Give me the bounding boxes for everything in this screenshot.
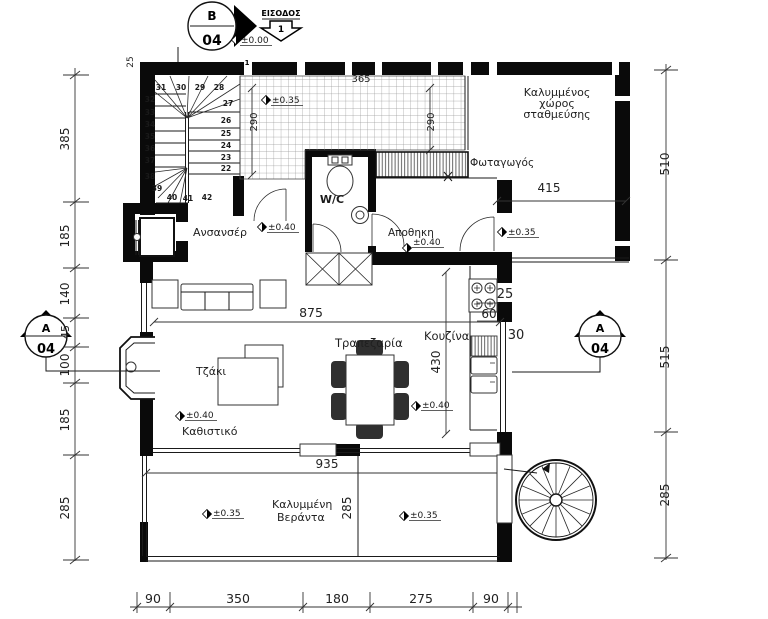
closets	[306, 253, 372, 285]
floor-plan-page: 31 30 29 28 27 26 25 24 23 22 32 33 34 3…	[0, 0, 768, 619]
step-30: 30	[176, 83, 186, 92]
toilet-tank-button	[332, 157, 338, 163]
section-b-letter: B	[207, 9, 216, 23]
dim-365: 365	[351, 74, 370, 85]
exterior-column	[497, 455, 512, 523]
dim-25-counter: 25	[497, 287, 514, 302]
svg-text:±0.00: ±0.00	[241, 36, 269, 46]
sink-basin-2	[471, 376, 497, 393]
dim-left-185a: 185	[58, 225, 72, 248]
kitchen-label: Κουζίνα	[424, 329, 470, 343]
storage-label: Αποθηκη	[388, 227, 434, 239]
dim-935: 935	[316, 457, 339, 471]
fireplace-structure	[120, 337, 155, 399]
section-a-letter: A	[42, 322, 51, 335]
section-a-number: 04	[37, 342, 55, 357]
sink-basin-1	[471, 357, 497, 374]
step-38: 38	[145, 172, 155, 181]
step-23: 23	[221, 153, 231, 162]
step-42: 42	[202, 193, 212, 202]
toilet-tank-button2	[342, 157, 348, 163]
dim-430: 430	[429, 351, 443, 374]
lightwell-label: Φωταγωγός	[470, 157, 534, 169]
step-39: 39	[152, 184, 162, 193]
step-36: 36	[145, 144, 155, 153]
side-table-left	[152, 280, 178, 308]
svg-text:±0.35: ±0.35	[272, 96, 300, 106]
dim-bottom-90b: 90	[483, 591, 499, 606]
svg-text:±0.35: ±0.35	[213, 509, 241, 519]
dim-30-wall: 30	[508, 328, 525, 343]
dining-table	[346, 355, 394, 425]
section-b-number: 04	[202, 33, 222, 49]
step-41: 41	[183, 194, 193, 203]
veranda-column-mid	[300, 444, 336, 456]
dim-left-100: 100	[58, 354, 72, 377]
dim-left-285: 285	[58, 497, 72, 520]
step-22: 22	[221, 164, 231, 173]
dim-875: 875	[299, 305, 323, 320]
coffee-table-2	[218, 358, 278, 405]
step-33: 33	[145, 108, 155, 117]
entrance-number: 1	[278, 25, 284, 35]
dim-60-counter: 60	[481, 307, 496, 321]
dim-left-45: 45	[59, 325, 72, 339]
step-25: 25	[221, 129, 231, 138]
svg-text:±0.35: ±0.35	[508, 228, 536, 238]
veranda-label-1: Καλυμμένη	[272, 498, 332, 511]
svg-text:±0.35: ±0.35	[410, 511, 438, 521]
elevator-car	[140, 218, 174, 256]
dim-bottom-350: 350	[226, 591, 250, 606]
wc-label: W/C	[320, 193, 344, 206]
dim-right-515: 515	[658, 346, 672, 369]
step-26: 26	[221, 116, 231, 125]
svg-text:±0.40: ±0.40	[186, 411, 214, 421]
svg-text:±0.40: ±0.40	[413, 238, 441, 248]
elevator	[134, 218, 175, 256]
section-a-letter: A	[596, 322, 605, 335]
dim-415: 415	[538, 181, 561, 195]
living-label: Καθιστικό	[182, 425, 238, 438]
side-table-right	[260, 280, 286, 308]
step-28: 28	[214, 83, 224, 92]
step-40: 40	[167, 193, 177, 202]
entry-step-number: 1	[245, 59, 250, 67]
dim-25-corner: 25	[126, 56, 136, 67]
dim-left-185b: 185	[58, 409, 72, 432]
fireplace-label: Τζάκι	[195, 365, 226, 378]
floor-plan-drawing: 31 30 29 28 27 26 25 24 23 22 32 33 34 3…	[0, 0, 768, 619]
dim-left-140: 140	[58, 283, 72, 306]
dim-bottom-180: 180	[325, 591, 349, 606]
svg-text:±0.40: ±0.40	[268, 223, 296, 233]
entrance-label: ΕΙΣΟΔΟΣ	[261, 9, 300, 18]
step-31: 31	[156, 83, 166, 92]
drainer	[471, 336, 497, 356]
dim-290-right: 290	[426, 112, 437, 131]
step-29: 29	[195, 83, 205, 92]
step-27: 27	[223, 99, 233, 108]
step-37: 37	[145, 156, 155, 165]
dim-left-385: 385	[58, 128, 72, 151]
wc-sink-drain	[356, 211, 364, 219]
light-well-grate	[376, 152, 468, 177]
veranda-column-right	[470, 443, 500, 456]
veranda-label-2: Βεράντα	[277, 511, 325, 524]
step-35: 35	[145, 132, 155, 141]
elevator-motor-icon	[134, 234, 141, 241]
dim-285-veranda: 285	[340, 497, 354, 520]
dining-label: Τραπεζαρία	[334, 336, 403, 350]
dim-bottom-275: 275	[409, 591, 433, 606]
step-24: 24	[221, 141, 231, 150]
dim-right-285: 285	[658, 484, 672, 507]
elevator-label: Ανσανσέρ	[193, 226, 247, 239]
dim-290-left: 290	[249, 112, 260, 131]
step-32: 32	[145, 95, 155, 104]
sofa	[181, 284, 253, 310]
step-34: 34	[145, 120, 155, 129]
dim-right-510: 510	[658, 153, 672, 176]
section-a-number: 04	[591, 342, 609, 357]
parking-label-3: σταθμεύσης	[523, 108, 590, 121]
toilet-bowl	[327, 166, 353, 196]
dim-bottom-90a: 90	[145, 591, 161, 606]
